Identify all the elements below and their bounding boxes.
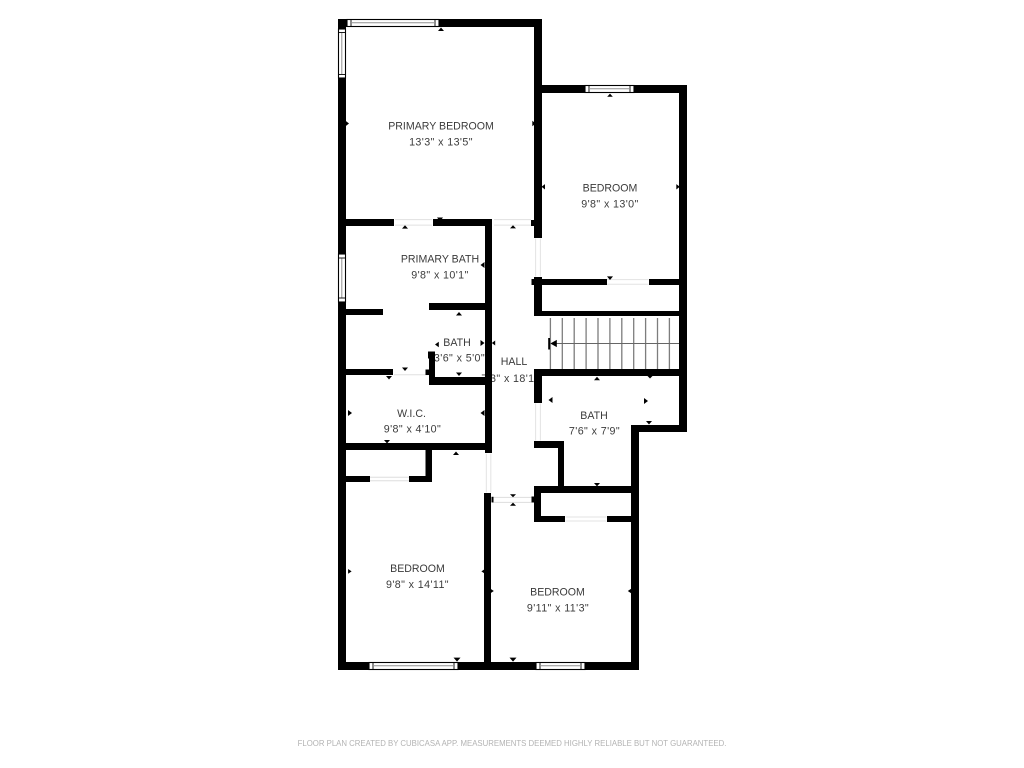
svg-text:BATH: BATH (443, 337, 470, 349)
svg-text:9'8" x 14'11": 9'8" x 14'11" (386, 579, 449, 591)
svg-text:BEDROOM: BEDROOM (583, 183, 638, 195)
svg-text:9'8" x 10'1": 9'8" x 10'1" (411, 270, 468, 282)
svg-text:7'6" x 7'9": 7'6" x 7'9" (569, 426, 620, 438)
svg-text:PRIMARY BATH: PRIMARY BATH (401, 254, 479, 266)
svg-text:BEDROOM: BEDROOM (530, 587, 585, 599)
svg-text:9'8" x 13'0": 9'8" x 13'0" (581, 199, 638, 211)
svg-text:FLOOR PLAN CREATED BY CUBICASA: FLOOR PLAN CREATED BY CUBICASA APP. MEAS… (298, 739, 727, 748)
svg-text:9'8" x 4'10": 9'8" x 4'10" (384, 424, 441, 436)
svg-text:BATH: BATH (580, 410, 607, 422)
svg-text:PRIMARY BEDROOM: PRIMARY BEDROOM (388, 121, 494, 133)
svg-text:HALL: HALL (501, 356, 528, 368)
svg-text:3'6" x 5'0": 3'6" x 5'0" (434, 353, 485, 365)
svg-text:BEDROOM: BEDROOM (390, 563, 445, 575)
svg-text:9'11" x 11'3": 9'11" x 11'3" (527, 603, 589, 615)
svg-text:13'3" x 13'5": 13'3" x 13'5" (409, 137, 473, 149)
svg-text:W.I.C.: W.I.C. (397, 408, 426, 420)
